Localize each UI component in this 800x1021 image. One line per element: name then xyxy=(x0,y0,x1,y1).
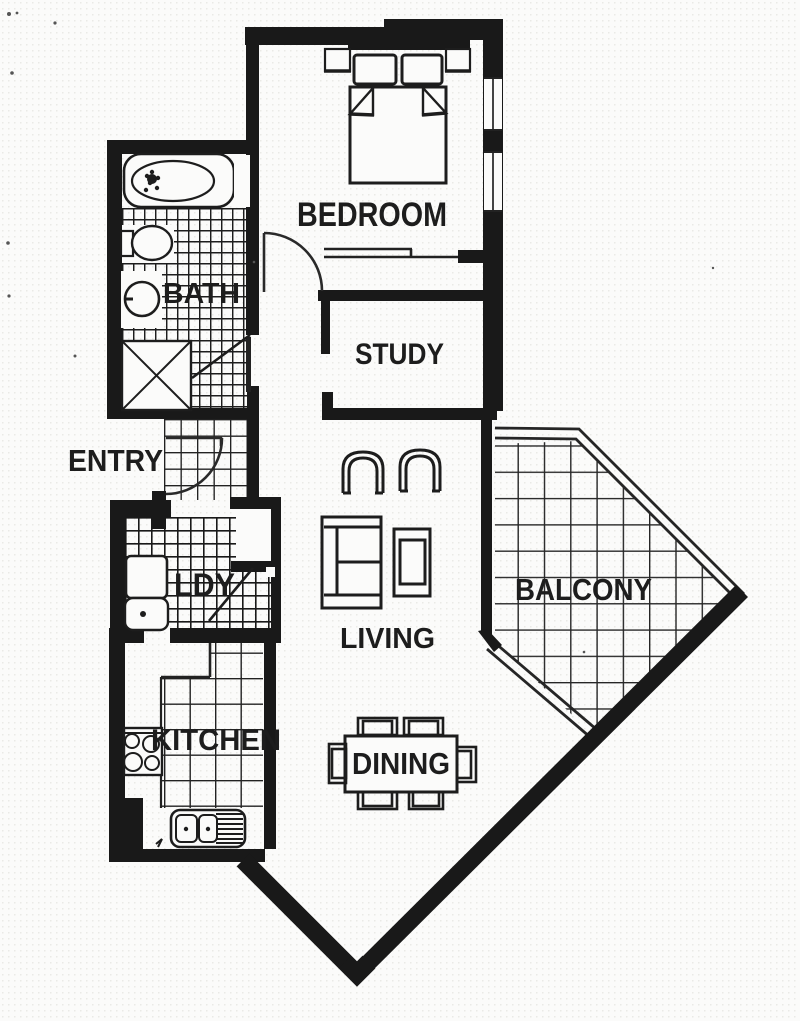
svg-text:STUDY: STUDY xyxy=(355,338,444,371)
svg-text:LDY: LDY xyxy=(174,567,235,603)
svg-text:KITCHEN: KITCHEN xyxy=(151,724,281,757)
svg-text:BEDROOM: BEDROOM xyxy=(297,196,447,234)
svg-text:BALCONY: BALCONY xyxy=(515,572,652,607)
svg-text:DINING: DINING xyxy=(352,746,450,781)
svg-text:BATH: BATH xyxy=(163,278,240,310)
svg-text:LIVING: LIVING xyxy=(340,623,435,655)
svg-text:ENTRY: ENTRY xyxy=(68,443,163,478)
